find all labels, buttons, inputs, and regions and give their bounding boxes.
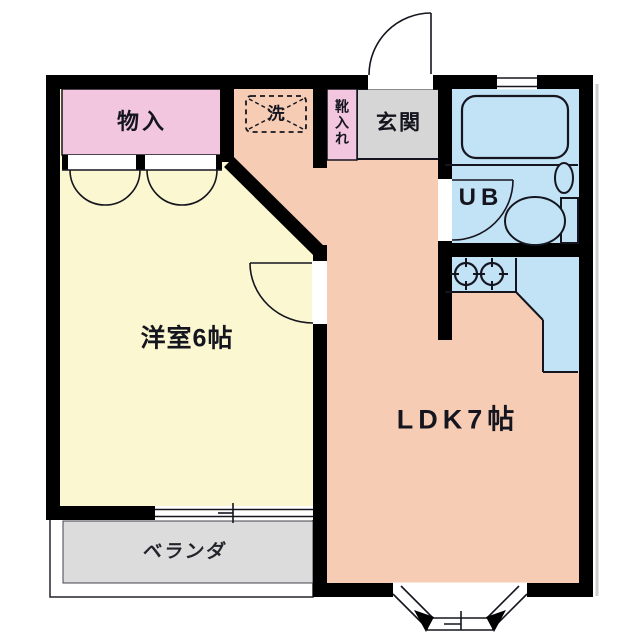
sink-icon (555, 163, 573, 193)
toilet-bowl-icon (505, 197, 565, 245)
bathtub-icon (462, 96, 568, 158)
label-entrance: 玄関 (376, 113, 422, 134)
entrance-door-icon (369, 13, 431, 75)
label-western-room: 洋室6帖 (141, 327, 234, 352)
bay-window-opening (393, 583, 527, 598)
label-washer: 洗 (268, 106, 285, 123)
entrance-door-opening (368, 75, 433, 90)
veranda-window-opening (155, 506, 313, 520)
label-unit-bath: UB (459, 186, 504, 210)
ub-door-opening (438, 179, 452, 241)
label-ldk: LDK7帖 (397, 407, 520, 434)
room-door-opening (312, 261, 327, 324)
label-veranda: ベランダ (142, 543, 229, 562)
floorplan-canvas: 物入 洗 靴入れ 玄関 UB 洋室6帖 LDK7帖 ベランダ (0, 0, 640, 640)
label-shoe-cabinet: 靴入れ (335, 99, 349, 147)
floorplan-drawing (0, 0, 640, 640)
label-storage: 物入 (117, 111, 167, 133)
